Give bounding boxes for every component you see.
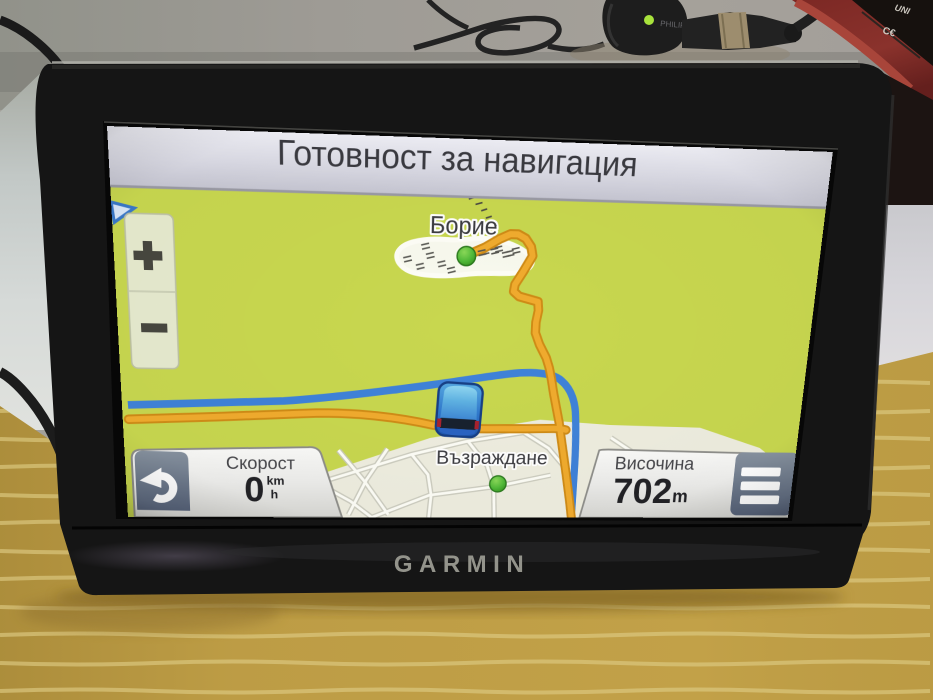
svg-text:GARMIN: GARMIN xyxy=(394,551,530,578)
